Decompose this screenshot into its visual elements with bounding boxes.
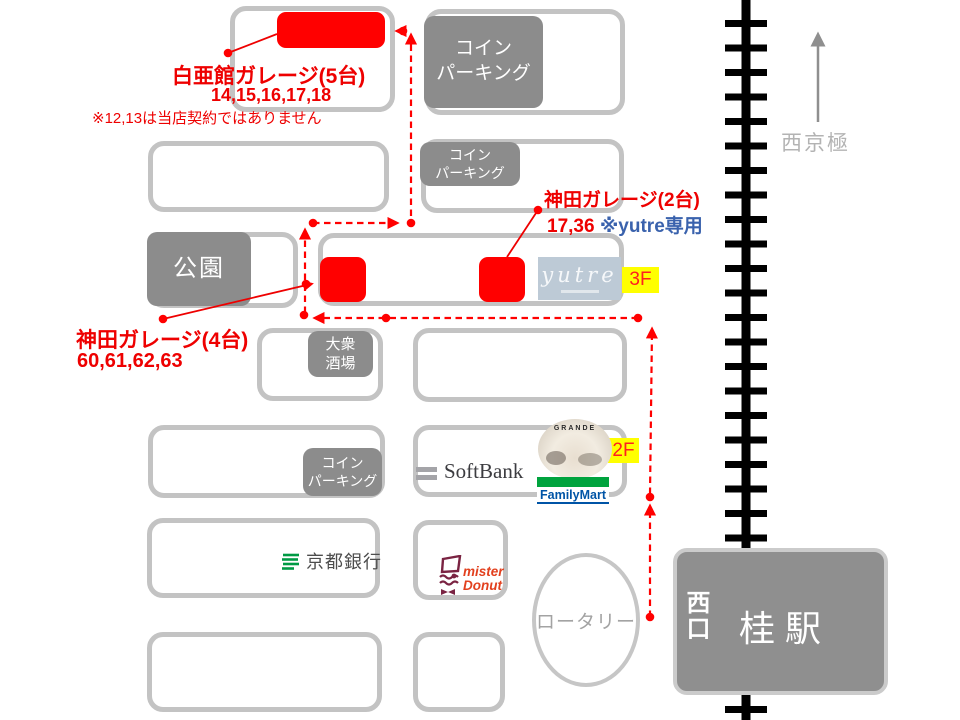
- grande-photo-detail: [546, 451, 566, 465]
- kanda4-garage-numbers: 60,61,62,63: [77, 350, 183, 373]
- hakua-garage-note: ※12,13は当店契約ではありません: [92, 107, 322, 128]
- yutre-tagline: [561, 290, 599, 293]
- yutre-sign: yutre: [538, 257, 621, 300]
- kanda2-garage-line2: 17,36 ※yutre専用: [547, 211, 703, 238]
- west-exit-label: 西口: [683, 590, 707, 642]
- nishikyogoku-direction-label: 西京極: [781, 127, 850, 157]
- kyoto-bank-text: 京都銀行: [306, 548, 382, 574]
- rotary-label: ロータリー: [536, 607, 636, 634]
- katsura-station: 西口 桂駅: [673, 548, 888, 695]
- yutre-logo-text: yutre: [541, 265, 617, 286]
- hakua-garage-spots: [277, 12, 385, 48]
- grande-photo-detail: [578, 453, 602, 466]
- grande-photo: GRANDE: [538, 419, 612, 479]
- map-canvas: コイン パーキング コイン パーキング 公園 大衆 酒場 コイン パーキング y…: [0, 0, 960, 720]
- coin-parking-box-2: コイン パーキング: [420, 142, 520, 186]
- park-box: 公園: [147, 232, 251, 306]
- softbank-logo: SoftBank: [416, 459, 523, 484]
- kyoto-bank-icon: [281, 552, 301, 571]
- familymart-logo-text: FamilyMart: [540, 488, 606, 502]
- softbank-logo-text: SoftBank: [444, 459, 523, 484]
- floor-2f-badge: 2F: [608, 438, 639, 463]
- coin-parking-box-1: コイン パーキング: [424, 16, 543, 108]
- kanda2-garage-spots: [479, 257, 525, 302]
- kyoto-bank-logo: 京都銀行: [281, 548, 382, 574]
- building-block-8: [413, 328, 627, 402]
- station-name: 桂駅: [739, 600, 831, 652]
- hakua-garage-numbers: 14,15,16,17,18: [211, 85, 331, 106]
- building-block-14: [413, 632, 505, 712]
- softbank-bars-icon: [416, 467, 437, 483]
- coin-parking-box-3: コイン パーキング: [303, 448, 382, 496]
- familymart-sign: FamilyMart: [537, 487, 609, 504]
- kanda2-garage-title: 神田ガレージ(2台): [544, 185, 700, 212]
- familymart-green-bar: [537, 477, 609, 487]
- floor-3f-badge: 3F: [622, 267, 659, 293]
- mister-donut-text: mister Donut: [463, 565, 504, 593]
- kanda4-garage-spots: [320, 257, 366, 302]
- building-block-2: [148, 141, 389, 212]
- kanda2-garage-note: ※yutre専用: [600, 216, 703, 237]
- izakaya-box: 大衆 酒場: [308, 331, 373, 377]
- mister-donut-icon: [436, 555, 466, 597]
- kanda2-garage-numbers: 17,36: [547, 216, 595, 237]
- building-block-13: [147, 632, 382, 712]
- rotary-circle: ロータリー: [532, 553, 640, 687]
